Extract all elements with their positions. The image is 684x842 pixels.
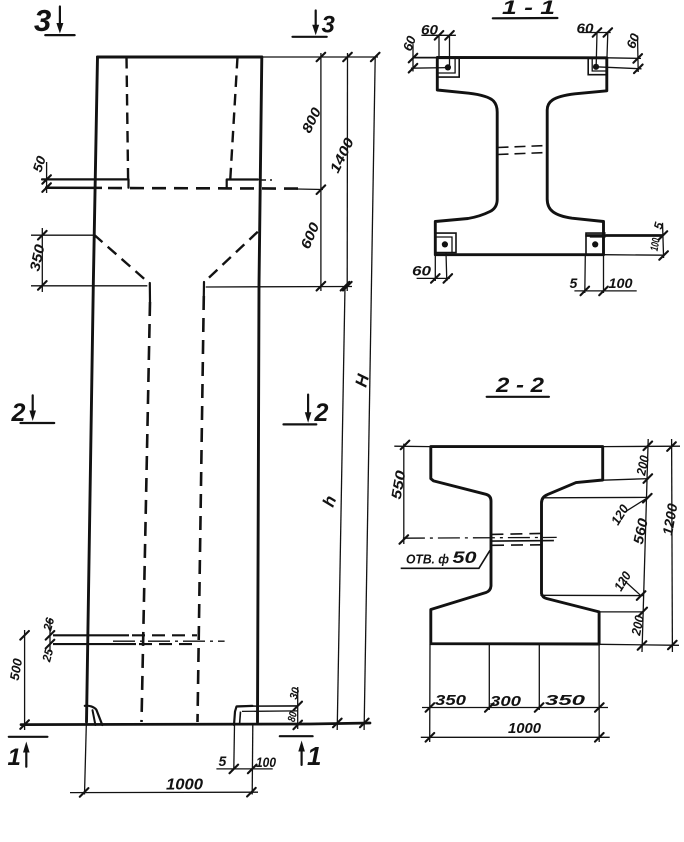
svg-text:100: 100 — [609, 275, 633, 291]
svg-text:h: h — [319, 493, 340, 509]
svg-text:200: 200 — [633, 453, 652, 477]
svg-text:5: 5 — [219, 753, 227, 769]
svg-text:50: 50 — [453, 549, 478, 567]
svg-text:1000: 1000 — [508, 720, 542, 737]
svg-text:5: 5 — [570, 275, 578, 291]
svg-text:600: 600 — [297, 220, 322, 251]
svg-text:120: 120 — [611, 568, 635, 594]
svg-text:100: 100 — [256, 754, 276, 770]
svg-text:1200: 1200 — [659, 502, 680, 536]
svg-text:350: 350 — [26, 243, 47, 273]
svg-text:200: 200 — [628, 613, 647, 637]
svg-text:350: 350 — [545, 692, 586, 709]
svg-text:3: 3 — [34, 3, 51, 38]
svg-text:1: 1 — [307, 741, 321, 771]
svg-text:30: 30 — [288, 685, 303, 701]
svg-text:60: 60 — [623, 31, 642, 51]
svg-text:60: 60 — [400, 33, 419, 53]
svg-text:1 - 1: 1 - 1 — [502, 0, 555, 19]
svg-text:60: 60 — [412, 263, 431, 279]
svg-text:25: 25 — [39, 647, 56, 664]
svg-text:500: 500 — [7, 656, 26, 681]
svg-text:5: 5 — [651, 220, 666, 230]
svg-text:3: 3 — [322, 12, 336, 39]
svg-text:1: 1 — [8, 744, 21, 771]
svg-text:560: 560 — [630, 517, 651, 546]
svg-text:120: 120 — [608, 501, 632, 527]
svg-text:1400: 1400 — [326, 135, 357, 175]
svg-text:2: 2 — [314, 399, 329, 427]
svg-text:300: 300 — [490, 693, 522, 710]
svg-text:2 - 2: 2 - 2 — [495, 374, 544, 397]
svg-text:550: 550 — [388, 469, 409, 501]
svg-text:ОТВ. ф: ОТВ. ф — [406, 552, 449, 567]
svg-text:60: 60 — [577, 21, 595, 36]
svg-text:1000: 1000 — [166, 777, 203, 794]
svg-text:350: 350 — [435, 692, 467, 709]
